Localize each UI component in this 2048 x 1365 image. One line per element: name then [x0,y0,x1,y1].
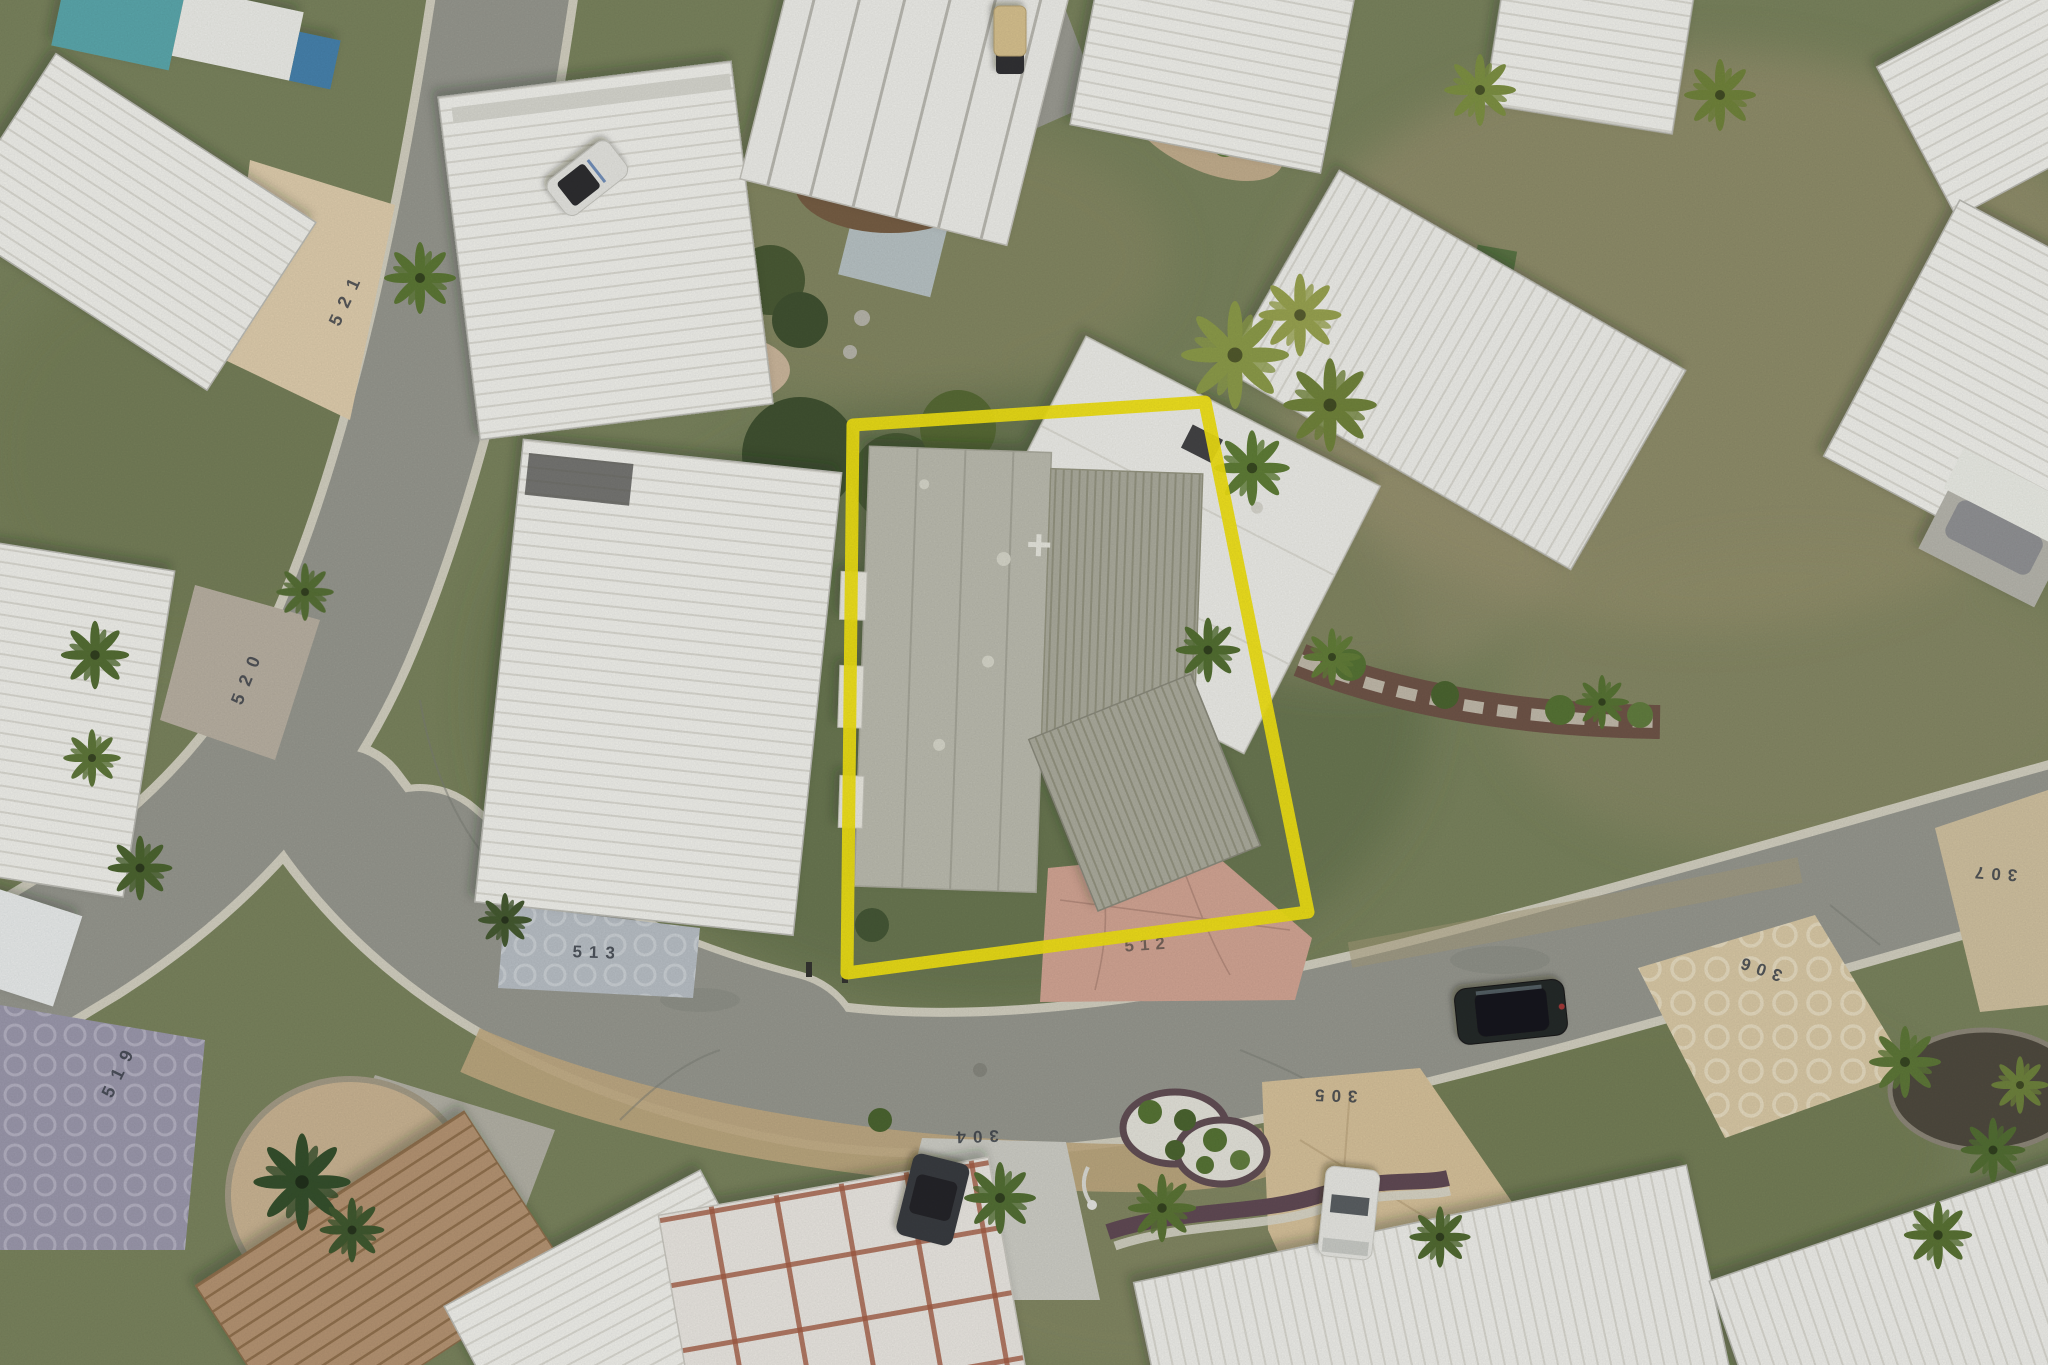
photo-haze [0,0,2048,1365]
aerial-photo: 521 520 519 513 512 304 305 306 307 [0,0,2048,1365]
aerial-scene: 521 520 519 513 512 304 305 306 307 [0,0,2048,1365]
